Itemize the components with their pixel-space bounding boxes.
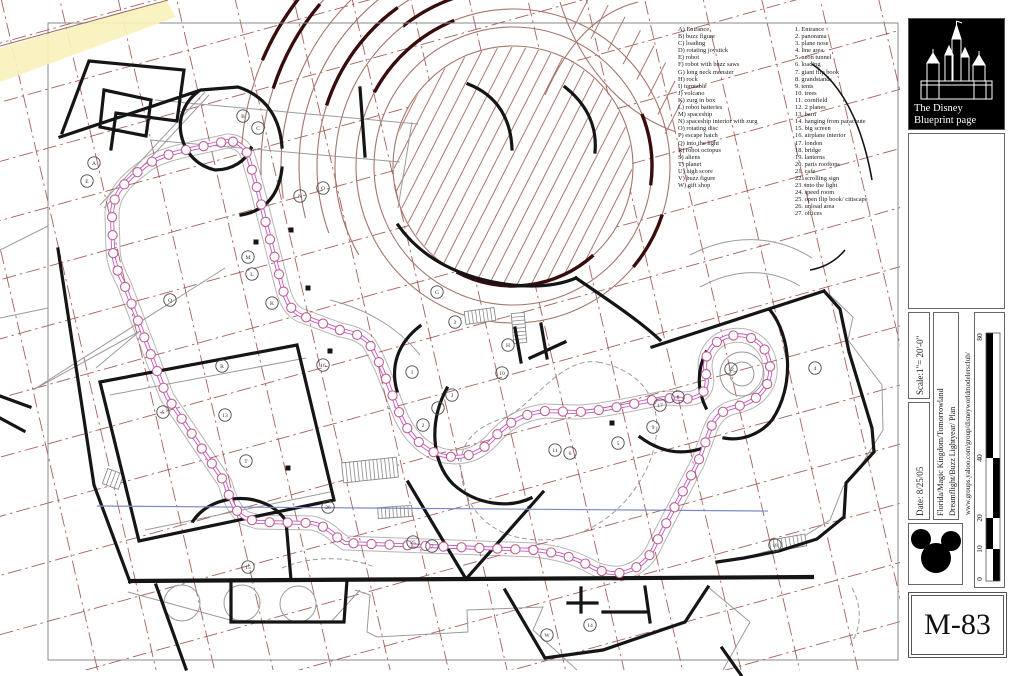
svg-text:N: N (298, 194, 302, 200)
svg-text:7: 7 (431, 544, 434, 550)
svg-text:W: W (544, 633, 550, 639)
svg-text:T: T (244, 459, 248, 465)
url-strip: www.groups.yahoo.com/group/disneyworldmo… (961, 312, 973, 520)
svg-text:12: 12 (728, 367, 734, 373)
svg-text:R: R (220, 364, 224, 370)
svg-text:A: A (92, 161, 96, 167)
svg-text:13: 13 (222, 413, 228, 419)
svg-text:J: J (451, 393, 454, 399)
castle-icon (909, 19, 1004, 103)
location-box: Florida/Magic Kingdom/Tomorrowland Dream… (933, 312, 959, 520)
svg-text:18: 18 (772, 543, 778, 549)
svg-text:16: 16 (320, 363, 326, 369)
svg-text:26: 26 (325, 505, 331, 511)
svg-text:I: I (411, 370, 413, 376)
svg-text:E: E (85, 179, 89, 185)
svg-text:2: 2 (422, 423, 425, 429)
scale-box: Scale:1"= 20'-0" (908, 312, 930, 399)
sheet-number: M-83 (924, 608, 991, 642)
svg-text:3: 3 (454, 320, 457, 326)
svg-text:G: G (435, 290, 439, 296)
date-box: Date: 8/25/05 (908, 402, 930, 520)
svg-text:20: 20 (975, 514, 984, 522)
svg-text:14: 14 (587, 623, 593, 629)
scale-bar: 804020100 (974, 312, 1005, 588)
svg-text:1: 1 (437, 406, 440, 412)
svg-text:B: B (241, 114, 245, 120)
svg-text:10: 10 (975, 545, 984, 553)
empty-notes-box (908, 133, 1005, 309)
svg-text:M: M (246, 255, 251, 261)
mickey-icon (909, 524, 962, 584)
disney-blueprint-logo: The Disney Blueprint page (908, 18, 1005, 130)
svg-text:K: K (270, 301, 274, 307)
svg-text:O: O (321, 186, 325, 192)
svg-text:L: L (250, 272, 254, 278)
svg-text:11: 11 (552, 448, 558, 454)
location-text: Florida/Magic Kingdom/Tomorrowland Dream… (935, 313, 961, 519)
svg-text:0: 0 (975, 577, 984, 581)
highlight-strip (0, 0, 176, 82)
legend-scenes: A) Entrance B) buzz figure C) loading D)… (678, 26, 757, 189)
svg-text:15: 15 (245, 565, 251, 571)
svg-text:5: 5 (617, 441, 620, 447)
blueprint-sheet: AEBCNOMLKQRSTIJ1231011124895171814152526… (0, 0, 1024, 676)
svg-text:8: 8 (677, 395, 680, 401)
stairs (102, 307, 806, 552)
svg-text:25: 25 (410, 540, 416, 546)
svg-text:80: 80 (975, 333, 984, 341)
svg-text:40: 40 (975, 454, 984, 462)
mickey-box (908, 523, 963, 585)
legend-exterior: 1. Entrance 2. panorama 3. plane nose 4.… (795, 26, 868, 218)
url-text: www.groups.yahoo.com/group/disneyworldmo… (962, 312, 974, 518)
svg-text:H: H (506, 343, 510, 349)
scale-text: Scale:1"= 20'-0" (910, 313, 930, 398)
sheet-number-box: M-83 (908, 592, 1007, 658)
svg-text:4: 4 (814, 366, 817, 372)
dome-fill (394, 47, 632, 285)
svg-text:17: 17 (657, 403, 663, 409)
svg-text:6: 6 (569, 451, 572, 457)
date-text: Date: 8/25/05 (910, 403, 930, 519)
svg-text:9: 9 (652, 425, 655, 431)
svg-text:10: 10 (499, 371, 505, 377)
floor-plan-drawing: AEBCNOMLKQRSTIJ1231011124895171814152526… (0, 0, 1024, 676)
svg-text:S: S (161, 410, 164, 416)
svg-text:Q: Q (168, 298, 172, 304)
svg-text:C: C (256, 126, 260, 132)
logo-title: The Disney Blueprint page (914, 103, 976, 126)
